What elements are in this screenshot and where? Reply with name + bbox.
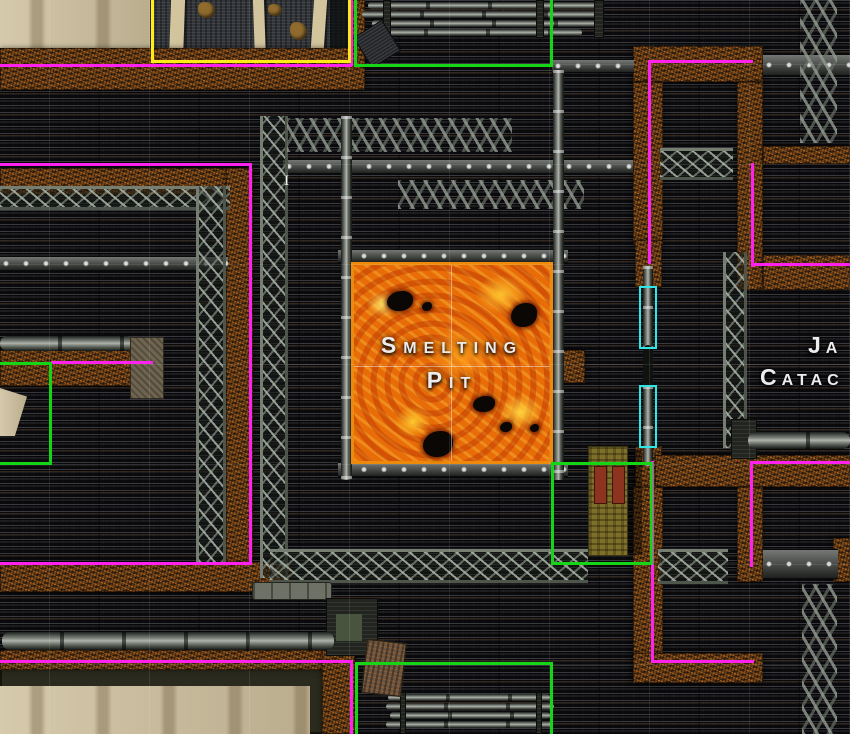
region-line-magenta[interactable] <box>752 461 850 464</box>
right-room-label-line2: Catac <box>760 364 844 391</box>
smelting-pit-label: Smelting Pit <box>351 262 553 464</box>
green-debris-patch <box>336 614 362 641</box>
region-rect-green-left[interactable] <box>0 362 52 465</box>
walkway-mid-right <box>552 59 634 73</box>
smelting-pit-line1: Smelting <box>381 332 523 359</box>
pipe-right <box>748 432 850 449</box>
wall-right-cell-band <box>763 146 850 164</box>
region-rect-green-mid[interactable] <box>551 462 653 565</box>
truss-catwalk-right-lower <box>658 549 728 584</box>
right-room-label-line1: Ja <box>808 332 842 359</box>
pipe-bottom-long <box>2 632 334 650</box>
region-line-magenta[interactable] <box>51 361 153 364</box>
region-line-magenta[interactable] <box>350 660 353 734</box>
region-line-magenta[interactable] <box>751 163 754 267</box>
door-marker-cyan-bottom[interactable] <box>639 385 657 448</box>
door-track-handle <box>643 345 653 387</box>
cable-truss-right-top <box>800 0 837 143</box>
region-rect-green-bottom[interactable] <box>355 662 553 734</box>
pipe-rack-post <box>594 0 604 38</box>
wall-right-band-mid <box>763 255 850 290</box>
walkway-top-middle <box>283 159 633 174</box>
cable-truss-upper <box>287 118 512 152</box>
cable-truss-right-bottom <box>802 584 837 734</box>
door-marker-cyan-top[interactable] <box>639 286 657 349</box>
walkway-bottomright <box>763 549 838 579</box>
sand-pit <box>0 686 310 734</box>
stone-ledge <box>252 582 332 600</box>
rail-lava-right <box>553 70 564 480</box>
cursor-mark: I <box>284 174 289 189</box>
region-line-magenta[interactable] <box>649 60 753 63</box>
region-rect-yellow-cage[interactable] <box>151 0 351 63</box>
map-canvas[interactable]: Smelting Pit Ja Catac I <box>0 0 850 734</box>
wall-left-room-bottom <box>0 562 290 592</box>
region-line-magenta[interactable] <box>750 461 753 567</box>
region-line-magenta[interactable] <box>0 660 353 663</box>
wall-topright-band <box>633 46 763 82</box>
smelting-pit-line2: Pit <box>427 367 478 394</box>
walkway-lava-bottom <box>338 462 568 477</box>
region-line-magenta[interactable] <box>0 64 352 67</box>
region-line-magenta[interactable] <box>648 60 651 264</box>
wall-rust-patch <box>563 350 585 383</box>
walkway-lava-top <box>338 249 568 263</box>
truss-catwalk-right-upper <box>660 148 733 180</box>
region-rect-green-top[interactable] <box>354 0 553 67</box>
region-line-magenta[interactable] <box>751 263 850 266</box>
region-line-magenta[interactable] <box>651 660 754 663</box>
truss-catwalk-bottom-middle <box>270 549 588 583</box>
